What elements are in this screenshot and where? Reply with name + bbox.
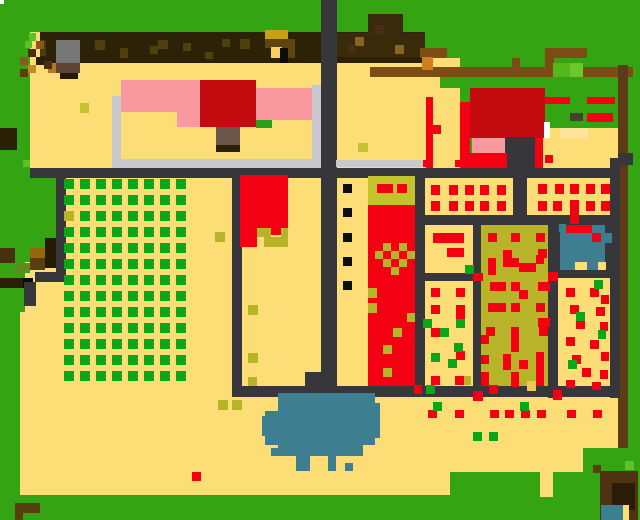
map-corner-pixel xyxy=(0,0,4,4)
game-map-screen xyxy=(0,0,640,520)
farm-map-canvas[interactable] xyxy=(0,0,640,520)
olive-field xyxy=(481,225,550,394)
water-trough-plot xyxy=(559,224,612,270)
